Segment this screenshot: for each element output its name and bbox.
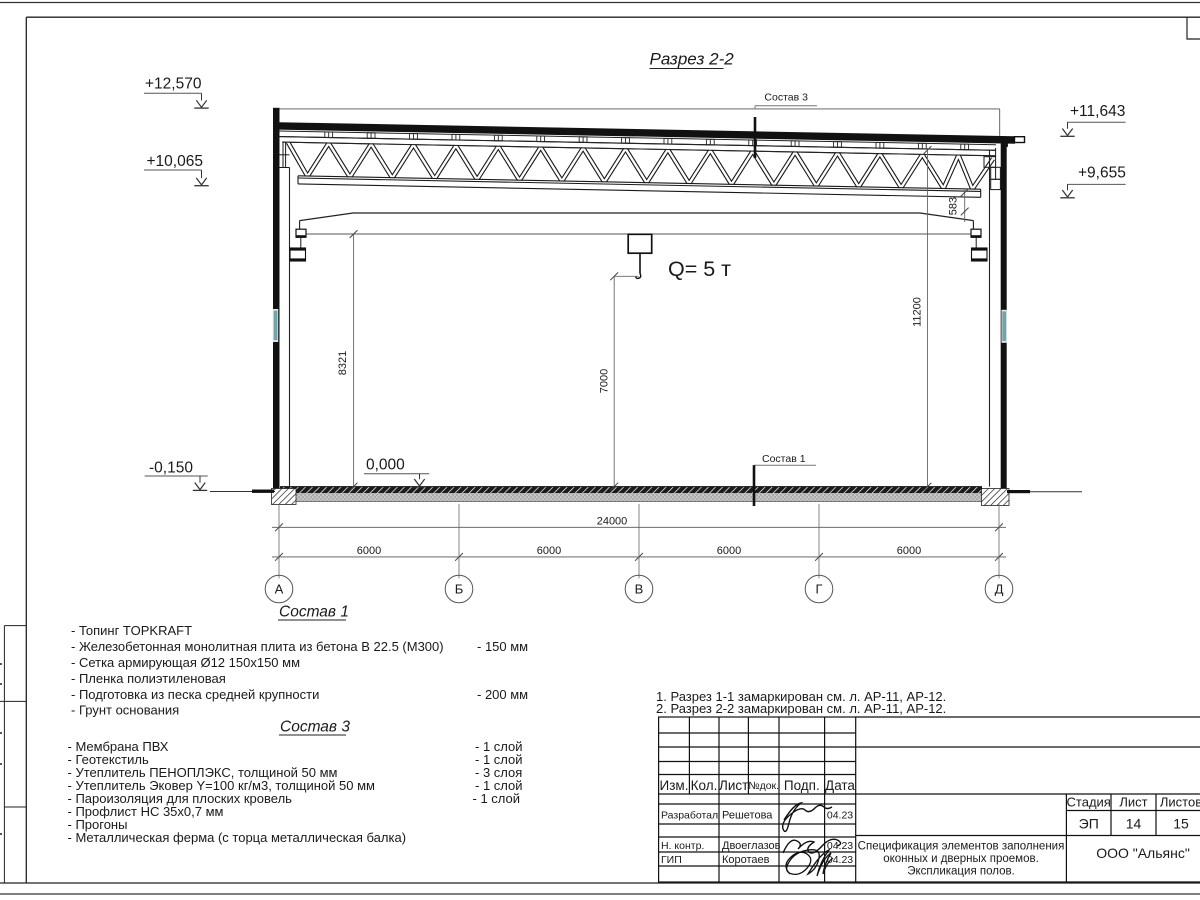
svg-text:11200: 11200	[912, 297, 924, 327]
svg-text:14: 14	[1126, 816, 1142, 832]
svg-text:6000: 6000	[537, 545, 561, 557]
svg-text:Q= 5 т: Q= 5 т	[668, 257, 731, 281]
svg-text:Состав 1: Состав 1	[279, 604, 349, 621]
svg-text:15: 15	[1173, 816, 1189, 832]
svg-text:- 200 мм: - 200 мм	[477, 687, 528, 702]
svg-text:Д: Д	[995, 582, 1004, 597]
svg-text:Б: Б	[455, 582, 464, 597]
svg-text:6000: 6000	[717, 545, 741, 557]
svg-text:- Топинг TOPKRAFT: - Топинг TOPKRAFT	[71, 623, 192, 638]
svg-text:Состав 1: Состав 1	[762, 453, 806, 465]
svg-text:Дата: Дата	[825, 778, 855, 793]
svg-text:ЭП: ЭП	[1079, 816, 1099, 832]
svg-text:+12,570: +12,570	[145, 76, 202, 93]
svg-text:0,000: 0,000	[366, 457, 405, 474]
svg-text:Экспликация полов.: Экспликация полов.	[907, 866, 1015, 878]
svg-text:Лист: Лист	[1119, 795, 1147, 810]
svg-text:Решетова: Решетова	[722, 810, 773, 822]
svg-text:+9,655: +9,655	[1078, 165, 1126, 182]
svg-text:А: А	[275, 582, 284, 597]
svg-text:Листов: Листов	[1160, 795, 1200, 810]
svg-text:6000: 6000	[897, 545, 921, 557]
svg-text:Коротаев: Коротаев	[722, 854, 770, 866]
svg-text:- Металлическая ферма (с торца: - Металлическая ферма (с торца металличе…	[68, 830, 407, 845]
svg-text:Кол.: Кол.	[691, 778, 718, 793]
svg-text:Двоеглазов: Двоеглазов	[722, 840, 781, 852]
svg-text:Подп.: Подп.	[784, 778, 820, 793]
svg-text:Разрез 2-2: Разрез 2-2	[650, 50, 735, 69]
svg-text:Спецификация элементов заполне: Спецификация элементов заполнения	[858, 841, 1065, 853]
svg-text:2. Разрез 2-2 замаркирован см.: 2. Разрез 2-2 замаркирован см. л. АР-11,…	[656, 701, 946, 716]
svg-text:- Пленка полиэтиленовая: - Пленка полиэтиленовая	[71, 671, 226, 686]
svg-text:Состав 3: Состав 3	[280, 719, 350, 736]
svg-text:оконных и дверных проемов.: оконных и дверных проемов.	[883, 853, 1039, 865]
svg-text:583: 583	[948, 197, 960, 215]
svg-text:- Сетка армирующая Ø12 150х150: - Сетка армирующая Ø12 150х150 мм	[71, 655, 300, 670]
svg-text:Состав 3: Состав 3	[764, 92, 808, 104]
svg-text:Разработал: Разработал	[661, 810, 718, 822]
svg-text:- 150 мм: - 150 мм	[477, 639, 528, 654]
svg-text:24000: 24000	[597, 516, 628, 528]
svg-text:Н. контр.: Н. контр.	[661, 840, 704, 852]
svg-text:- Грунт основания: - Грунт основания	[71, 703, 179, 718]
svg-text:Стадия: Стадия	[1067, 795, 1111, 810]
svg-text:ГИП: ГИП	[661, 854, 682, 866]
svg-text:8321: 8321	[337, 351, 349, 375]
svg-text:- 1 слой: - 1 слой	[473, 791, 521, 806]
svg-text:+10,065: +10,065	[147, 153, 203, 170]
svg-text:ООО "Альянс": ООО "Альянс"	[1096, 845, 1190, 861]
svg-text:Лист: Лист	[719, 778, 748, 793]
svg-text:В: В	[635, 582, 644, 597]
svg-text:-0,150: -0,150	[149, 460, 193, 477]
svg-text:6000: 6000	[357, 545, 381, 557]
svg-text:04.23: 04.23	[827, 810, 853, 822]
svg-text:№док.: №док.	[748, 780, 779, 792]
svg-text:+11,643: +11,643	[1070, 103, 1125, 120]
svg-text:- Железобетонная монолитная п: - Железобетонная монолитная плита из бет…	[71, 639, 444, 654]
svg-text:- Подготовка из песка средней: - Подготовка из песка средней крупности	[71, 687, 319, 702]
svg-text:Г: Г	[815, 582, 822, 597]
svg-text:7000: 7000	[598, 369, 610, 393]
svg-text:Изм.: Изм.	[660, 778, 689, 793]
